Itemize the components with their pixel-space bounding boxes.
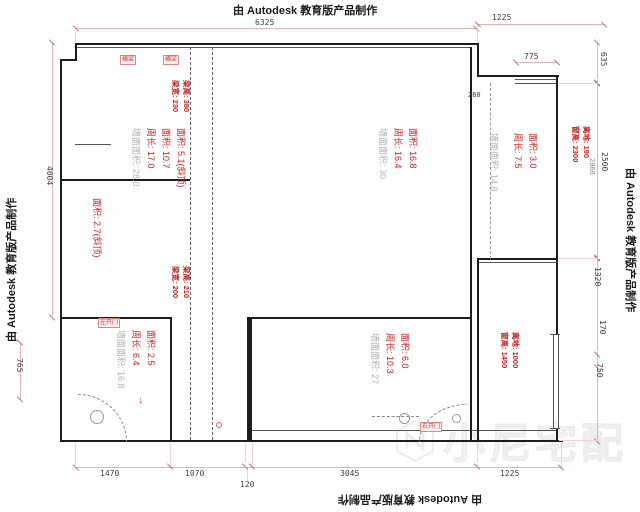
dim-line-2500 <box>597 83 598 258</box>
room-area-label: 面积: 2.7(斜顶) <box>89 198 104 312</box>
dim-line-635 <box>597 43 598 83</box>
ext-line <box>561 443 562 467</box>
dim-text-1470: 1470 <box>100 469 119 478</box>
wall-balcony-top <box>477 75 559 77</box>
wall-top-inner <box>75 47 471 48</box>
wall-bottom <box>60 440 563 442</box>
beam-width-label: 梁宽: 230 <box>170 80 181 134</box>
dim-line-bottom <box>75 467 562 468</box>
red-dot-marker <box>216 422 222 428</box>
room-wallarea-label: 墙面面积: 16.8 <box>113 330 128 415</box>
dim-text-1225-bottom: 1225 <box>500 469 519 478</box>
wall-topleft-step <box>60 59 76 61</box>
room-area-label: 面积: 2.5 <box>143 330 158 415</box>
room-label-central: 面积: 16.8 周长: 16.4 墙面面积: 30 <box>375 128 420 232</box>
room-area-label: 面积: 10.7 <box>158 128 173 252</box>
dim-text-2500: 2500 <box>600 152 609 182</box>
beam-height-label: 梁高: 380 <box>181 80 192 134</box>
right-window-line1 <box>553 335 554 428</box>
wall-right-upper <box>556 75 558 335</box>
room-area-label: 面积: 5.1(斜顶) <box>173 128 188 252</box>
ext-line <box>559 440 599 441</box>
room-perimeter-label: 周长: 7.5 <box>510 133 525 207</box>
ext-line <box>75 443 76 467</box>
dim-text-4004: 4004 <box>45 166 54 196</box>
window-offset-label: 离地: 1000 <box>510 332 521 400</box>
wall-topright-vertical <box>477 43 479 76</box>
beam-width-label: 梁宽: 200 <box>170 266 181 320</box>
room-perimeter-label: 周长: 10.3 <box>382 333 397 420</box>
ext-line <box>559 83 599 84</box>
ext-line <box>252 443 253 467</box>
dim-text-775: 775 <box>524 52 538 61</box>
beam-tag: 横梁 <box>120 55 136 65</box>
room-label-left-strip: 面积: 2.7(斜顶) <box>88 198 104 312</box>
wall-balcony-sill-inner <box>477 262 558 263</box>
right-window-line2 <box>558 335 559 428</box>
balcony-window-line2 <box>515 83 558 84</box>
room-wallarea-label: 墙面面积: 30 <box>375 128 390 232</box>
beam-height-label: 梁高: 210 <box>181 266 192 320</box>
watermark-left: 由 Autodesk 教育版产品制作 <box>3 164 19 342</box>
dim-text-170: 170 <box>598 320 607 340</box>
beam-annotation-top: 梁高: 380 梁宽: 230 <box>170 80 192 134</box>
watermark-bottom: 由 Autodesk 教育版产品制作 <box>250 492 570 508</box>
room-wallarea-label: 墙面面积: 27 <box>367 333 382 420</box>
dim-text-635: 635 <box>599 52 608 76</box>
dim-text-1225-top: 1225 <box>492 13 511 22</box>
room-wallarea-label: 墙面面积: 14.8 <box>486 133 501 230</box>
right-window-sill-top <box>550 334 560 335</box>
room-label-balcony: 面积: 3.0 周长: 7.5 <box>510 133 540 207</box>
dim-text-260: 260 <box>468 91 481 99</box>
room-label-top-left: 面积: 5.1(斜顶) 面积: 10.7 周长: 17.0 墙面面积: 28.0 <box>128 128 188 252</box>
ext-line <box>75 30 76 43</box>
wall-bottom-inner <box>248 430 558 431</box>
ext-line <box>477 443 478 467</box>
dim-text-6325: 6325 <box>255 18 274 27</box>
room-label-balcony-wallarea: 墙面面积: 14.8 <box>487 133 501 230</box>
bath-door-tag: 左开门 <box>98 318 120 328</box>
right-door-tag: 右开门 <box>420 422 442 432</box>
dim-text-1320: 1320 <box>593 267 602 295</box>
dim-text-765: 765 <box>15 358 24 384</box>
dim-text-750: 750 <box>595 363 604 385</box>
room-perimeter-label: 周长: 17.0 <box>143 128 158 252</box>
room-label-bottom-center: 面积: 6.0 周长: 10.3 墙面面积: 27 <box>367 333 412 420</box>
wall-right-lower <box>556 428 558 442</box>
watermark-right: 由 Autodesk 教育版产品制作 <box>623 168 639 346</box>
wall-top <box>75 43 478 45</box>
ext-line <box>559 258 599 259</box>
dim-text-3045: 3045 <box>340 469 359 478</box>
wall-bottomcenter-top <box>247 317 470 319</box>
drain-circle-1 <box>90 410 104 424</box>
dim-line-775 <box>515 62 558 63</box>
wall-bath-right <box>170 317 172 441</box>
floorplan-canvas: 由 Autodesk 教育版产品制作 由 Autodesk 教育版产品制作 由 … <box>0 0 640 512</box>
ext-line <box>245 443 246 467</box>
drain-circle-3 <box>452 414 461 423</box>
room-label-bathroom: 面积: 2.5 周长: 6.4 墙面面积: 16.8 <box>113 330 158 415</box>
slope-line <box>75 144 111 145</box>
room-area-label: 面积: 16.8 <box>405 128 420 232</box>
dim-line-top-6325 <box>75 28 477 29</box>
window-annotation-right-bottom: 离地: 1000 窗高: 1450 <box>499 332 521 400</box>
ext-line <box>477 26 478 43</box>
wall-central-right <box>470 47 472 441</box>
wall-thick-120 <box>247 317 252 441</box>
dim-line-top-1225 <box>477 24 605 25</box>
right-window-sill-bottom <box>550 428 560 429</box>
window-annotation-right-top: 离地: 190 窗高: 2300 <box>570 126 592 192</box>
room-area-label: 面积: 6.0 <box>397 333 412 420</box>
wall-left <box>60 59 62 442</box>
wall-rightroom-left <box>477 258 479 441</box>
window-offset-label: 离地: 190 <box>581 126 592 192</box>
beam-annotation-bottom: 梁高: 210 梁宽: 200 <box>170 266 192 320</box>
window-height-label: 窗高: 1450 <box>499 332 510 400</box>
room-perimeter-label: 周长: 16.4 <box>390 128 405 232</box>
room-area-label: 面积: 3.0 <box>525 133 540 207</box>
window-height-label: 窗高: 2300 <box>570 126 581 192</box>
down-arrow-marker: ↓ <box>138 396 143 406</box>
room-wallarea-label: 墙面面积: 28.0 <box>128 128 143 252</box>
balcony-window-line1 <box>515 79 558 80</box>
dim-text-1070: 1070 <box>185 469 204 478</box>
dim-text-120: 120 <box>240 480 254 489</box>
beam-dashed-line-2 <box>212 47 213 440</box>
watermark-top: 由 Autodesk 教育版产品制作 <box>233 2 377 18</box>
ext-line <box>170 443 171 467</box>
beam-tag: 横梁 <box>163 55 179 65</box>
